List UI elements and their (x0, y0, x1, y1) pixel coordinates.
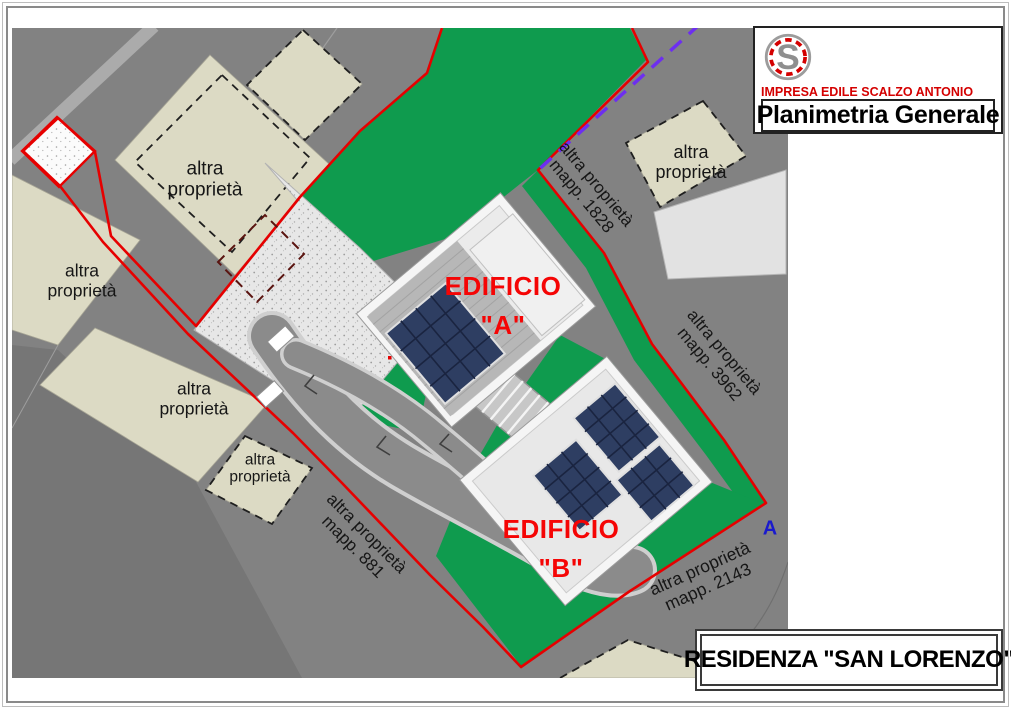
project-title: RESIDENZA "SAN LORENZO" (700, 634, 998, 686)
building-b-label: EDIFICIO"B" (503, 510, 620, 588)
red-survey-dot (388, 356, 392, 360)
parcel-label: altra proprietà (220, 452, 300, 487)
title-block-top: S IMPRESA EDILE SCALZO ANTONIO (761, 31, 995, 99)
section-marker-a: A (763, 518, 777, 541)
parcel-label: altra proprietà (644, 142, 739, 182)
company-name: IMPRESA EDILE SCALZO ANTONIO (761, 85, 995, 99)
parcel-label: altra proprietà (158, 159, 253, 202)
drawing-sheet: altra proprietà altra proprietà altra pr… (0, 0, 1011, 709)
drawing-title-box: Planimetria Generale (761, 99, 995, 132)
building-a-label: EDIFICIO"A" (445, 267, 562, 345)
drawing-title: Planimetria Generale (757, 101, 1000, 130)
title-block: S IMPRESA EDILE SCALZO ANTONIO Planimetr… (753, 26, 1003, 134)
parcel-label: altra proprietà (37, 261, 127, 300)
project-title-box: RESIDENZA "SAN LORENZO" (695, 629, 1003, 691)
company-logo: S (763, 32, 813, 82)
parcel-label: altra proprietà (149, 379, 239, 418)
